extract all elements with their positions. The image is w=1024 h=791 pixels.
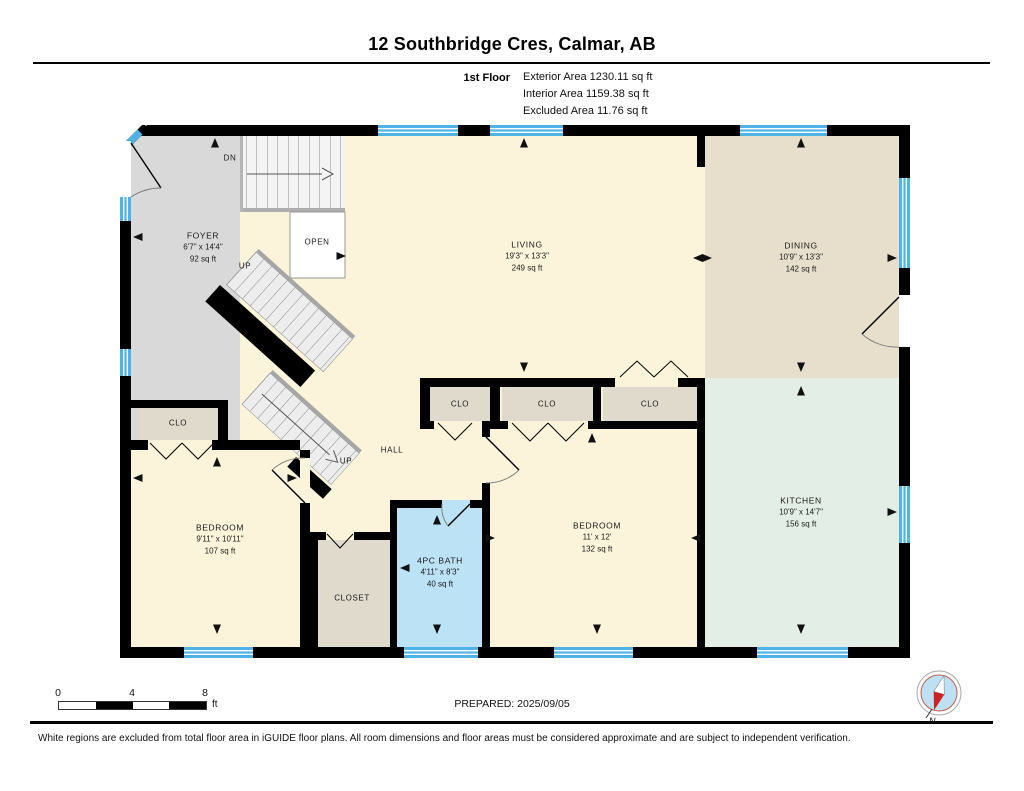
- bedroom1-east-wall: [300, 503, 310, 647]
- label-up-upper: UP: [239, 262, 251, 271]
- label-clo-2: CLO: [538, 400, 556, 409]
- window: [404, 647, 478, 658]
- window: [740, 125, 827, 136]
- label-bath: 4PC BATH4'11" x 8'3"40 sq ft: [417, 554, 463, 590]
- prepared-date: PREPARED: 2025/09/05: [454, 698, 569, 710]
- page-title: 12 Southbridge Cres, Calmar, AB: [0, 34, 1024, 55]
- scale-unit: ft: [212, 699, 218, 710]
- label-dn: DN: [224, 154, 237, 163]
- exterior-area: Exterior Area 1230.11 sq ft: [523, 71, 652, 83]
- label-foyer: FOYER6'7" x 14'4"92 sq ft: [183, 229, 222, 265]
- window: [184, 647, 253, 658]
- scale-tick-0: 0: [55, 687, 61, 699]
- label-bedroom1: BEDROOM9'11" x 10'11"107 sq ft: [196, 521, 244, 557]
- window: [757, 647, 848, 658]
- label-up-lower: UP: [340, 457, 352, 466]
- floor-label: 1st Floor: [380, 72, 510, 84]
- label-open: OPEN: [304, 238, 329, 247]
- header-divider: [33, 62, 990, 64]
- stairs-down: [240, 136, 345, 212]
- window: [899, 178, 910, 268]
- label-bedroom2: BEDROOM11' x 12'132 sq ft: [573, 519, 621, 555]
- closet-west-wall: [310, 532, 318, 647]
- scale-tick-8: 8: [202, 687, 208, 699]
- label-dining: DINING10'9" x 13'3"142 sq ft: [779, 239, 823, 275]
- room-areas: [131, 136, 899, 647]
- foyer-area: [131, 136, 240, 440]
- kitchen-west-wall: [697, 378, 705, 647]
- floor-plan-page: 12 Southbridge Cres, Calmar, AB 1st Floo…: [0, 0, 1024, 791]
- window: [899, 486, 910, 543]
- window: [120, 349, 131, 376]
- floor-plan-drawing: [120, 125, 910, 658]
- window: [554, 647, 633, 658]
- floor-plan: FOYER6'7" x 14'4"92 sq ft LIVING19'3" x …: [120, 125, 910, 658]
- label-living: LIVING19'3" x 13'3"249 sq ft: [505, 238, 549, 274]
- scale-bar: [58, 701, 207, 710]
- interior-area: Interior Area 1159.38 sq ft: [523, 88, 649, 100]
- label-hall: HALL: [381, 446, 403, 455]
- label-clo-foyer: CLO: [169, 419, 187, 428]
- label-kitchen: KITCHEN10'9" x 14'7"156 sq ft: [779, 494, 823, 530]
- window: [490, 125, 563, 136]
- label-closet: CLOSET: [334, 594, 370, 603]
- window: [378, 125, 458, 136]
- window: [120, 195, 131, 221]
- scale-tick-4: 4: [129, 687, 135, 699]
- label-clo-3: CLO: [641, 400, 659, 409]
- footer-divider: [30, 721, 993, 724]
- dining-stub-wall: [697, 136, 705, 167]
- disclaimer-text: White regions are excluded from total fl…: [38, 733, 998, 744]
- bedroom2-west-wall: [482, 483, 490, 647]
- bath-west-wall: [390, 500, 397, 647]
- label-clo-1: CLO: [451, 400, 469, 409]
- excluded-area: Excluded Area 11.76 sq ft: [523, 105, 648, 117]
